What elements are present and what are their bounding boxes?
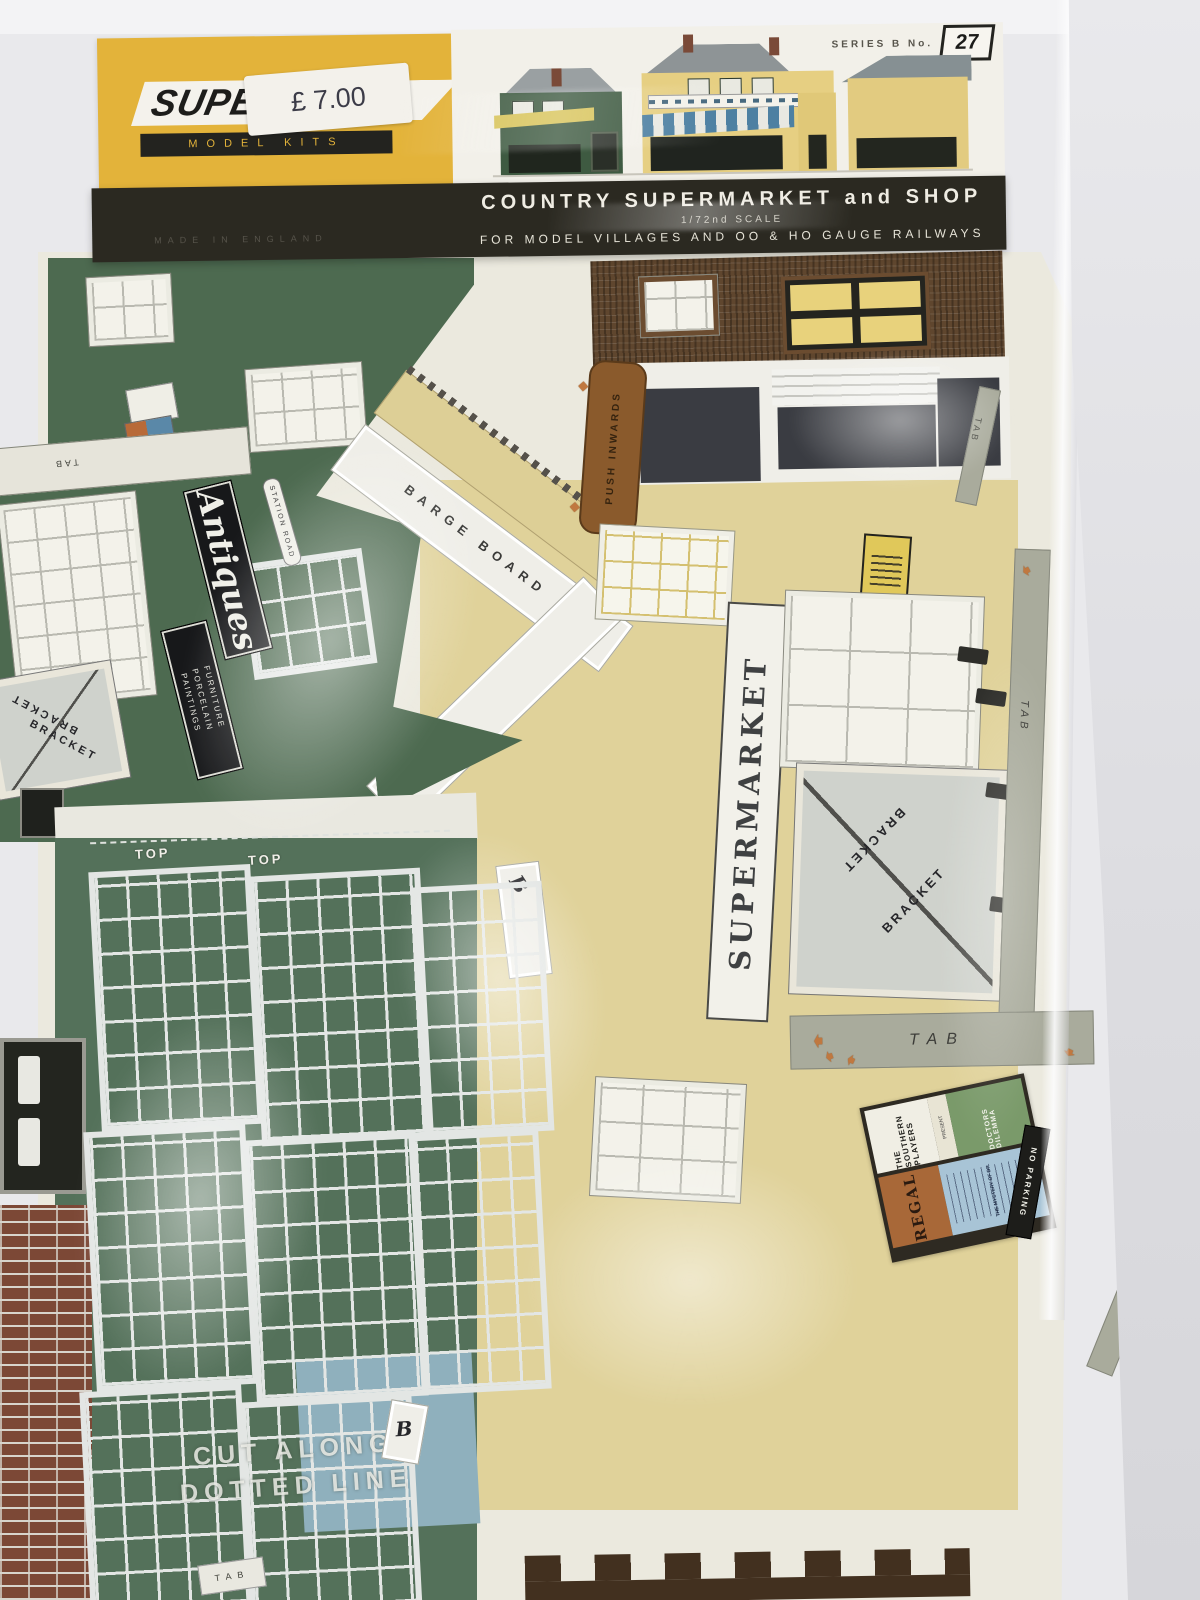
bracket-piece: BRACKET BRACKET [789, 763, 1007, 1000]
series-label: SERIES B No. [831, 38, 933, 50]
price-value: £ 7.00 [290, 81, 367, 118]
window-frame-piece [408, 1129, 551, 1395]
header-card-yellow: SUPER MODEL KITS £ 7.00 [97, 34, 457, 191]
small-poster [860, 533, 912, 598]
window-frame-piece [243, 1132, 429, 1405]
window-pane [790, 283, 852, 311]
window-piece [245, 362, 366, 452]
shop-window-opening [639, 387, 761, 483]
kit-titles: COUNTRY SUPERMARKET and SHOP 1/72nd SCAL… [452, 185, 1013, 248]
push-inwards-tab: PUSH INWARDS ◆ ◆ [578, 359, 648, 537]
kit-tagline: FOR MODEL VILLAGES AND OO & HO GAUGE RAI… [452, 226, 1012, 248]
window-frame-piece [83, 1124, 258, 1392]
dormer-window-piece [639, 275, 719, 338]
piece-letter: B [395, 1416, 414, 1441]
made-in-label: MADE IN ENGLAND [154, 233, 328, 245]
header-black-band: MADE IN ENGLAND COUNTRY SUPERMARKET and … [92, 176, 1007, 263]
window-frame-piece [88, 864, 263, 1132]
header-card-illustration: SERIES B No. 27 [451, 22, 1005, 192]
tab-label: TAB [909, 1031, 966, 1050]
window-frame-piece [412, 881, 555, 1137]
illustration-door [808, 135, 826, 169]
window-piece [596, 525, 735, 626]
window-pane [859, 281, 921, 309]
arrow-icon: ◆ [569, 499, 580, 513]
tab-label: TAB [53, 457, 80, 469]
chimney [683, 34, 693, 52]
window-frame-piece [248, 868, 434, 1147]
arrow-icon: ➧ [1016, 559, 1038, 582]
shutter-piece [772, 367, 941, 406]
illustration-shopfront [509, 144, 581, 173]
tab-label: TAB [1017, 700, 1030, 733]
large-window-piece [780, 591, 984, 774]
photo-of-model-kit-packet: TAB STATION ROAD Antiques FURNITURE PORC… [0, 0, 1200, 1600]
tab-label: TAB [969, 417, 984, 444]
window-pane [791, 317, 853, 345]
castellated-tab-strip [525, 1548, 971, 1600]
no-parking-label: NO PARKING [1017, 1146, 1038, 1217]
supermarket-banner-label: SUPERMARKET [723, 653, 774, 971]
door-panel [18, 1056, 40, 1104]
bracket-label: BRACKET [879, 864, 949, 935]
bracket-piece: BRACKET BRACKET [0, 660, 130, 799]
top-label: TOP [248, 851, 284, 868]
window-piece [590, 1077, 746, 1203]
chimney [769, 37, 779, 55]
push-inwards-label: PUSH INWARDS [604, 391, 623, 505]
tab-label: TAB [214, 1569, 250, 1584]
illustration-shopfront [856, 137, 956, 168]
illustration-door [590, 132, 619, 172]
shop-window-opening [777, 405, 936, 470]
illustration-shopfront [650, 135, 782, 171]
chimney [551, 68, 561, 86]
door-panel [18, 1118, 40, 1166]
red-brick-panel [0, 1205, 92, 1600]
window-pane [860, 315, 922, 343]
price-sticker: £ 7.00 [244, 62, 413, 136]
window-piece [86, 274, 173, 346]
door-piece [0, 1038, 86, 1194]
yellow-pane-window-piece [781, 271, 932, 354]
arrow-icon: ◆ [578, 378, 589, 392]
top-label: TOP [135, 845, 171, 862]
bracket-label: BRACKET [839, 805, 909, 876]
